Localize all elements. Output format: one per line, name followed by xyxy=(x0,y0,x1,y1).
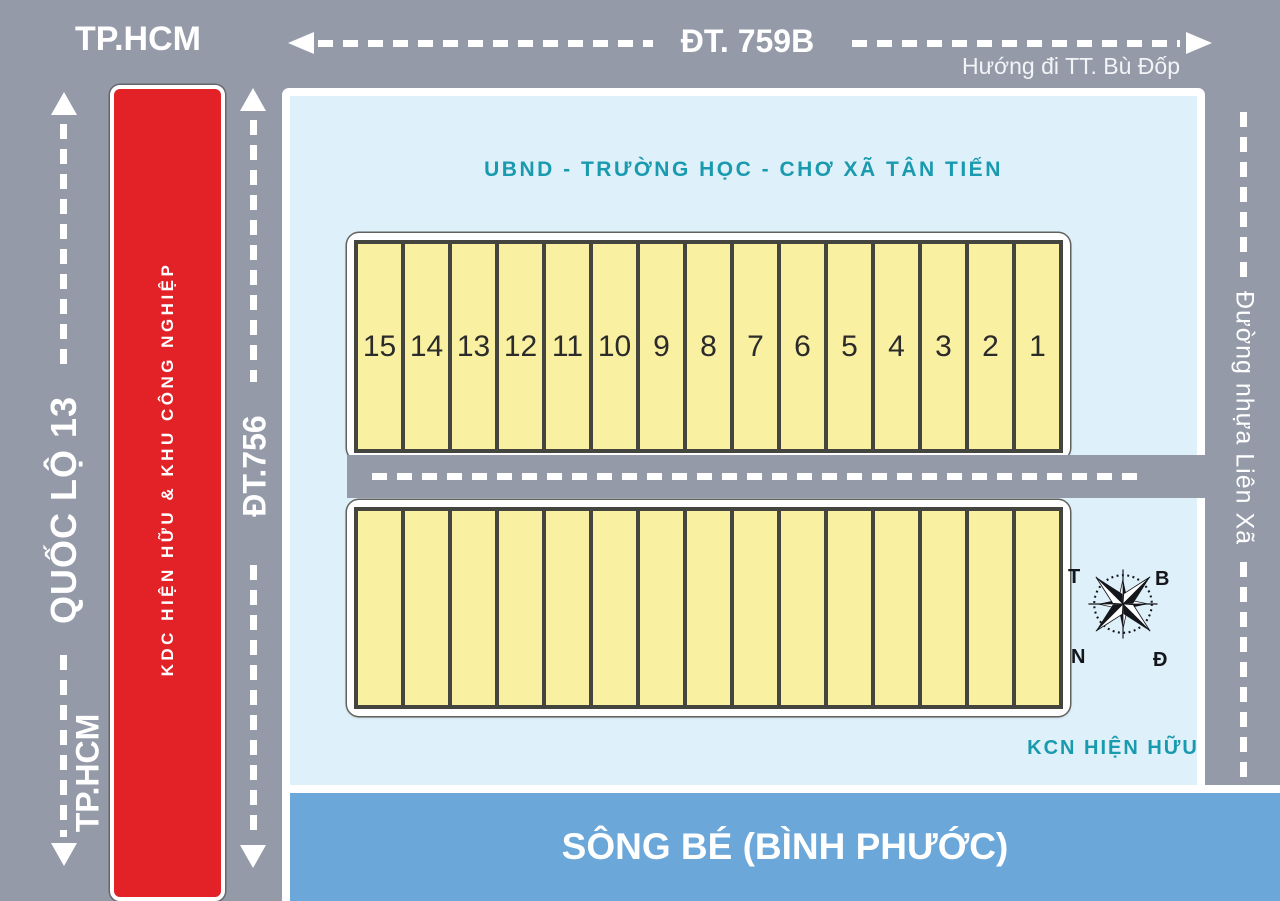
plot-cell: 14 xyxy=(405,244,448,449)
plot-cell xyxy=(922,511,965,705)
plot-block-top: 151413121110987654321 xyxy=(347,233,1070,460)
river-label: SÔNG BÉ (BÌNH PHƯỚC) xyxy=(562,826,1009,868)
top-road-name: ĐT. 759B xyxy=(655,23,840,60)
plot-cell xyxy=(405,511,448,705)
plot-cell: 8 xyxy=(687,244,730,449)
plot-cell xyxy=(828,511,871,705)
red-strip-label: KDC HIỆN HỮU & KHU CÔNG NGHIỆP xyxy=(158,261,178,676)
ql13-destination: TP.HCM xyxy=(70,714,107,833)
arrow-down-icon xyxy=(240,845,266,868)
plot-cell xyxy=(781,511,824,705)
top-road-dash-right xyxy=(852,40,1180,47)
lienxa-dash-top xyxy=(1240,112,1247,282)
plot-row-bottom xyxy=(354,507,1063,709)
plot-cell: 4 xyxy=(875,244,918,449)
ql13-dash-bottom xyxy=(60,655,67,837)
lienxa-dash-bottom xyxy=(1240,562,1247,784)
dt756-dash-top xyxy=(250,120,257,382)
arrow-down-icon xyxy=(51,843,77,866)
plot-cell: 1 xyxy=(1016,244,1059,449)
arrow-up-icon xyxy=(51,92,77,115)
plot-cell: 11 xyxy=(546,244,589,449)
arrow-left-icon xyxy=(288,32,314,54)
river-divider xyxy=(282,785,1280,793)
plot-cell: 7 xyxy=(734,244,777,449)
plot-cell: 12 xyxy=(499,244,542,449)
plot-cell xyxy=(546,511,589,705)
plot-cell xyxy=(875,511,918,705)
plot-cell: 2 xyxy=(969,244,1012,449)
ql13-dash-top xyxy=(60,124,67,374)
plot-cell xyxy=(499,511,542,705)
plot-cell: 9 xyxy=(640,244,683,449)
river-divider-left xyxy=(282,793,290,901)
plot-cell xyxy=(734,511,777,705)
top-road-dash-left xyxy=(318,40,653,47)
ql13-road-name: QUỐC LỘ 13 xyxy=(43,396,85,624)
dt756-dash-bottom xyxy=(250,565,257,837)
plot-block-bottom xyxy=(347,500,1070,716)
plot-cell: 15 xyxy=(358,244,401,449)
site-plan-map: UBND - TRƯỜNG HỌC - CHƠ XÃ TÂN TIẾN 1514… xyxy=(0,0,1280,901)
dt756-road-name: ĐT.756 xyxy=(237,415,274,516)
compass-south-label: N xyxy=(1071,646,1085,669)
plot-cell xyxy=(593,511,636,705)
red-strip: KDC HIỆN HỮU & KHU CÔNG NGHIỆP xyxy=(110,85,225,901)
plot-cell: 3 xyxy=(922,244,965,449)
plot-row-top: 151413121110987654321 xyxy=(354,240,1063,453)
top-road-direction-hint: Hướng đi TT. Bù Đốp xyxy=(880,53,1180,80)
plot-cell: 10 xyxy=(593,244,636,449)
river-bar: SÔNG BÉ (BÌNH PHƯỚC) xyxy=(290,793,1280,901)
plot-cell xyxy=(358,511,401,705)
kcn-label: KCN HIỆN HỮU xyxy=(1023,737,1203,760)
plot-cell: 6 xyxy=(781,244,824,449)
plot-cell xyxy=(640,511,683,705)
plot-cell xyxy=(687,511,730,705)
internal-road-centerline xyxy=(372,473,1147,480)
plot-cell: 13 xyxy=(452,244,495,449)
plot-cell xyxy=(1016,511,1059,705)
compass-north-label: B xyxy=(1155,568,1169,591)
arrow-right-icon xyxy=(1186,32,1212,54)
lienxa-road-name: Đường nhựa Liên Xã xyxy=(1230,291,1259,545)
internal-road xyxy=(347,455,1205,498)
compass-west-label: T xyxy=(1068,566,1080,589)
top-road-destination: TP.HCM xyxy=(75,20,201,59)
plot-cell: 5 xyxy=(828,244,871,449)
compass: T B N Đ xyxy=(1063,548,1183,668)
plot-cell xyxy=(969,511,1012,705)
arrow-up-icon xyxy=(240,88,266,111)
panel-heading: UBND - TRƯỜNG HỌC - CHƠ XÃ TÂN TIẾN xyxy=(290,158,1197,182)
plot-cell xyxy=(452,511,495,705)
compass-east-label: Đ xyxy=(1153,649,1167,672)
